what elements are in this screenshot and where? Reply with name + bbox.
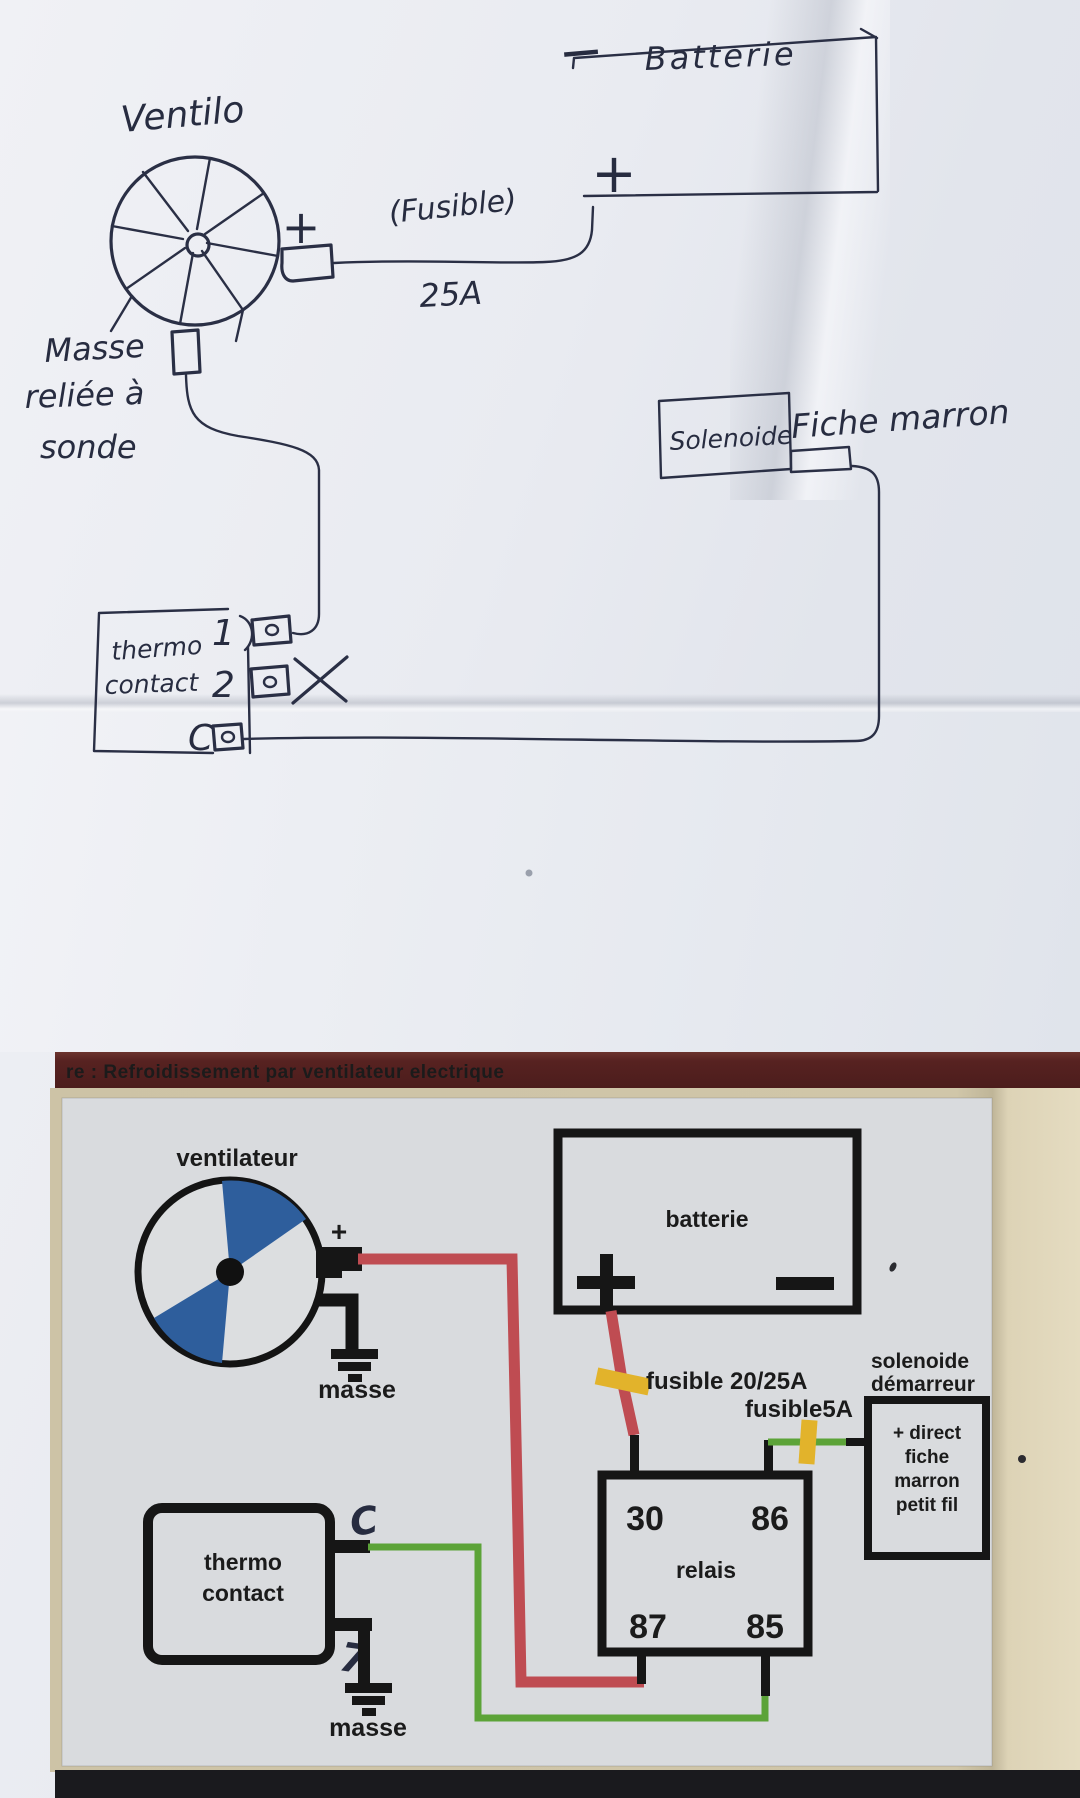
hand-battery-label: Batterie [644,35,797,78]
hand-thermo-label-1: thermo [110,631,203,666]
battery-minus-symbol [776,1277,834,1290]
hand-fuse-rating: 25A [418,274,483,315]
hand-ground-note-3: sonde [40,428,137,466]
paper-speck [526,870,533,877]
hand-fan-circle [111,157,279,325]
relay85-stub [761,1652,770,1696]
printed-diagram: re : Refroidissement par ventilateur ele… [0,1050,1080,1798]
relay87-stub [637,1650,646,1684]
hand-terminal-c-label: C [188,718,214,759]
hand-terminal-1-label: 1 [212,613,235,654]
hand-terminal-c-hole [222,732,234,742]
title-bar-text: re : Refroidissement par ventilateur ele… [66,1062,504,1083]
hand-terminal-2-hole [264,677,276,687]
hand-plug-label: Fiche marron [790,392,1011,446]
hand-thermo-label-2: contact [104,668,200,700]
relay-terminal-87: 87 [629,1608,667,1646]
hand-ground-note-2: reliée à [24,374,145,416]
hand-fan-label: Ventilo [119,89,246,141]
hand-fan-hub [187,234,209,256]
relay-terminal-86: 86 [751,1500,789,1538]
solenoid-box-line-3: marron [894,1471,959,1492]
photo-bottom-shadow [55,1770,1080,1798]
photo-of-wiring-diagrams: Ventilo + (Fusible) 25A − Batterie + Mas… [0,0,1080,1798]
hand-terminal-2-cross-mark [293,657,347,703]
hand-terminal-1-hole [266,625,278,635]
thermo-label-2: contact [202,1580,284,1606]
thermo-ground-stub [330,1618,372,1631]
hand-terminal-2-label: 2 [212,665,235,706]
hand-battery-plus-symbol: + [591,142,636,205]
hand-fan-blades [111,158,278,341]
hand-terminal-c-lug [213,724,243,750]
fuse-main-label: fusible 20/25A [646,1368,807,1395]
hand-drawn-diagram: Ventilo + (Fusible) 25A − Batterie + Mas… [0,0,1080,1050]
fan-connector-lip [316,1271,342,1278]
solenoid-box-line-2: fiche [905,1447,949,1468]
fuse-small-label: fusible5A [745,1396,853,1423]
hand-ground-connector [172,330,200,374]
hand-terminal-1-lug [252,616,291,645]
photo-speck-2 [1018,1455,1026,1463]
battery-label: batterie [665,1206,748,1232]
hand-fuse-label: (Fusible) [387,183,518,231]
solenoid-box-line-4: petit fil [896,1495,958,1516]
relay-terminal-30: 30 [626,1500,664,1538]
ground1-label: masse [318,1376,396,1404]
fan-label: ventilateur [176,1145,297,1172]
ground2-bar-1 [345,1683,392,1693]
ground1-bar-1 [331,1349,378,1359]
hand-solenoid-wire [244,466,879,742]
ground2-bar-2 [352,1696,385,1705]
fan-connector [316,1247,362,1271]
hand-ground-note-1: Masse [43,327,145,370]
hand-terminal-2-lug [251,666,289,697]
ground1-bar-2 [338,1362,371,1371]
hand-solenoid-connector [791,447,851,472]
fan-plus-label: + [331,1216,347,1247]
solenoid-box-line-1: + direct [893,1423,962,1444]
relay-label: relais [676,1557,736,1583]
ground2-label: masse [329,1714,407,1742]
solenoid-title-2: démarreur [871,1373,975,1396]
relay-terminal-85: 85 [746,1608,784,1646]
solenoid-title-1: solenoide [871,1350,969,1373]
thermo-ground-wire [358,1631,370,1683]
hand-battery-minus-symbol: − [556,18,607,85]
thermo-label-1: thermo [204,1549,282,1575]
fan-hub [216,1258,244,1286]
hand-ground-wire [186,375,319,634]
hand-solenoid-label: Solenoide [669,421,793,456]
hand-terminal-1-bracket [240,616,252,650]
fuse-small-body [798,1419,817,1464]
